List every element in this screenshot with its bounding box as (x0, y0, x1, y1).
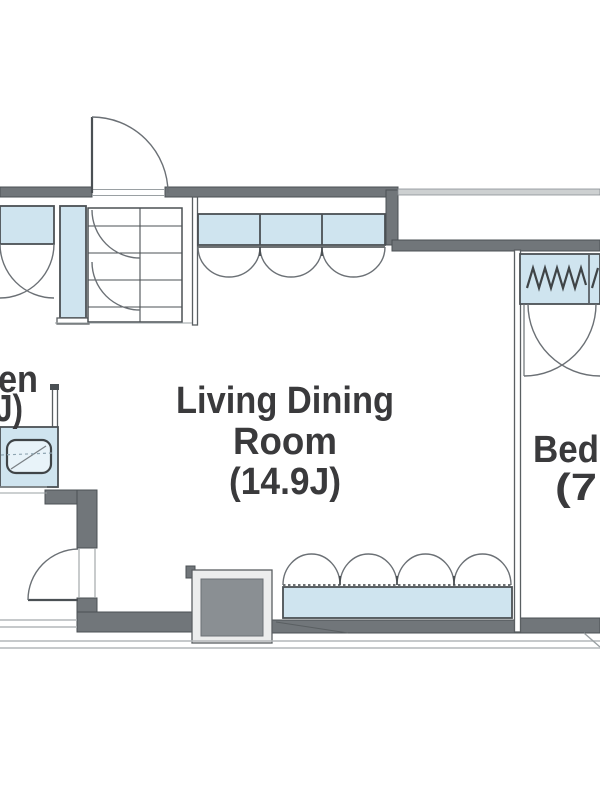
top-wall-mid (165, 187, 398, 197)
balcony-window-glass (283, 587, 512, 618)
hall-storage (0, 206, 192, 324)
curtain-hump-4 (454, 554, 511, 585)
kitchen-l-wall-v (77, 490, 97, 548)
curtain-scallop-1 (198, 247, 260, 277)
balcony-diagonal-right (584, 633, 600, 647)
top-step-wall (386, 190, 398, 245)
living-dining-label-line1: Living Dining (176, 380, 394, 422)
kitchen-wall-cap (50, 384, 59, 390)
closet-door-arc-right (528, 304, 600, 376)
shoe-cabinet (88, 208, 182, 322)
curtain-scallop-3 (322, 247, 385, 277)
kitchen-sink-counter (0, 427, 58, 493)
hall-closet-door-arc-left (0, 244, 54, 298)
living-dining-label-line3: (14.9J) (229, 461, 341, 503)
entrance-door-swing (92, 117, 168, 193)
hall-partition-wall (193, 197, 198, 325)
top-window-glass (198, 214, 385, 245)
entrance-door-arc (92, 117, 168, 193)
closet-door-arc-left (524, 304, 596, 376)
curtain-hump-1 (283, 554, 340, 585)
balcony-sliding-window (283, 554, 512, 618)
curtain-hump-2 (340, 554, 397, 585)
hall-closet (0, 206, 54, 244)
south-wall-left (77, 612, 195, 632)
hall-closet-door-arc-right (0, 244, 54, 298)
bedroom-partition-wall (515, 250, 521, 632)
triple-casement-window (198, 214, 385, 277)
bathroom-door-arc (28, 549, 78, 600)
bedroom-label-line2: (7 (555, 467, 597, 509)
bedroom-top-wall (392, 240, 600, 251)
curtain-hump-3 (397, 554, 454, 585)
bathroom-door-swing (28, 549, 78, 600)
upper-ledge-line (398, 189, 600, 195)
structural-pillar (192, 570, 272, 643)
kitchen-label-line2: J) (0, 388, 23, 430)
south-wall-right (515, 618, 600, 633)
bedroom-label-line1: Bed (533, 429, 599, 471)
pillar-inner (201, 579, 263, 636)
bedroom-hanger-closet (520, 254, 600, 376)
living-dining-label-line2: Room (233, 421, 337, 463)
room-labels: Living Dining Room (14.9J) Bed (7 en J) (0, 359, 599, 509)
tall-closet (60, 206, 86, 318)
top-wall-left (0, 187, 92, 197)
floor-plan: Living Dining Room (14.9J) Bed (7 en J) (0, 0, 600, 800)
curtain-scallop-2 (260, 247, 322, 277)
